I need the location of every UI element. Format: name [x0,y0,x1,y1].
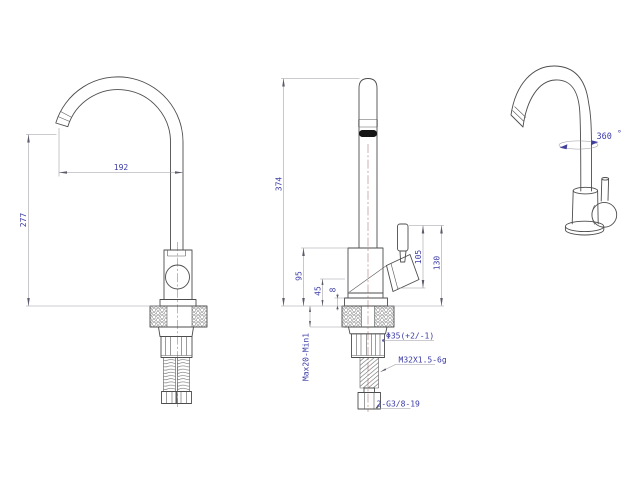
side-hose-neck [364,388,375,393]
front-hex-nut-right [176,392,192,404]
side-handle-grip [398,224,409,251]
label-hose-thread: 2-G3/8-19 [377,400,421,409]
label-thread-spec: M32X1.5-6g [399,356,447,365]
front-mounting-nut-columns [167,306,192,327]
front-knurl-left [150,306,167,327]
perspective-view: 360 ° [511,66,622,235]
persp-handle-rod [601,179,608,201]
dim-192: 192 [114,163,129,172]
front-view: 277 192 [19,77,207,408]
front-body [164,250,192,300]
persp-base-rim [565,227,603,235]
dim-277: 277 [19,213,28,228]
front-hex-nut-facets [167,392,187,404]
side-handle-stem [400,251,406,262]
label-mounting-range: Max20-Min1 [302,333,311,381]
front-shank-step [159,327,194,337]
side-aerator-ring [359,120,378,128]
front-escutcheon [160,300,196,307]
label-hole-diameter: Φ35(+2/-1) [386,332,434,341]
dim-105: 105 [414,250,423,265]
faucet-technical-drawing: 277 192 [0,0,640,480]
front-hose-left-texture [164,358,176,392]
persp-spout [511,66,592,191]
front-knurl-right [192,306,207,327]
front-body-step [168,250,186,256]
dim-95: 95 [295,271,304,281]
front-hose-right-texture [178,358,190,392]
dim-45: 45 [314,286,323,296]
side-dim-8-arrow-bottom [336,306,338,309]
front-spout-aerator-rings [58,112,71,122]
side-knurl-right [375,306,395,327]
front-hex-nut-left [162,392,178,404]
side-view: 374 95 45 8 105 130 Max20-Min1 Φ35(+2/-1… [275,79,447,413]
side-ext-lines [281,79,444,328]
persp-body-top [573,187,597,194]
persp-handle-knob [592,202,617,227]
front-ext-lines [26,128,160,306]
side-escutcheon [345,298,388,306]
side-knurl-left [342,306,362,327]
side-threaded-shank-texture [360,358,379,389]
dim-374: 374 [275,177,284,192]
degree-symbol: ° [617,129,622,138]
side-body [348,248,383,293]
side-handle-cone-inner [391,264,398,290]
side-flange [348,293,383,298]
persp-base-top [565,221,603,231]
front-slotted-nut-slots [161,337,192,356]
side-aerator-outlet [359,130,377,137]
dim-130: 130 [433,256,442,271]
dim-8: 8 [329,287,338,292]
label-rotation: 360 [597,132,612,142]
side-hex-nut-facets [365,393,375,410]
persp-handle-rod-top [602,178,609,181]
side-dim-8-arrow-top [336,295,338,298]
thread-spec-leader [381,365,396,372]
